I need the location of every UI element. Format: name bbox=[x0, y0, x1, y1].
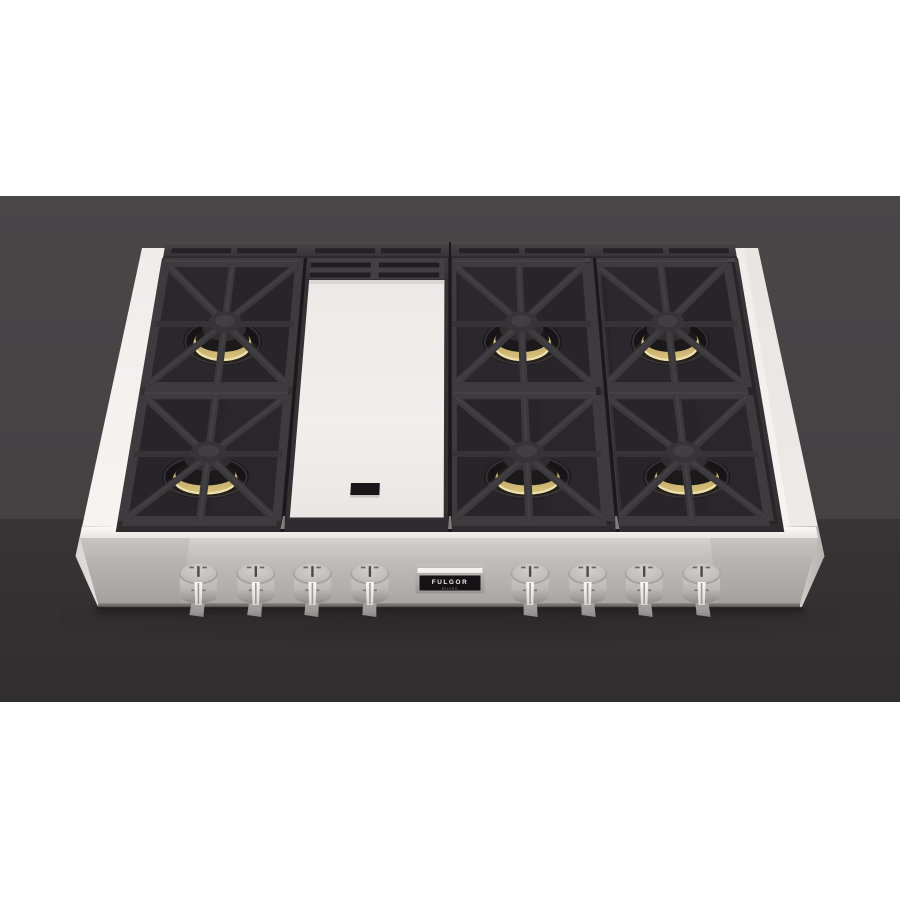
svg-text:MILANO: MILANO bbox=[442, 586, 458, 590]
svg-text:FULGOR: FULGOR bbox=[432, 579, 469, 586]
